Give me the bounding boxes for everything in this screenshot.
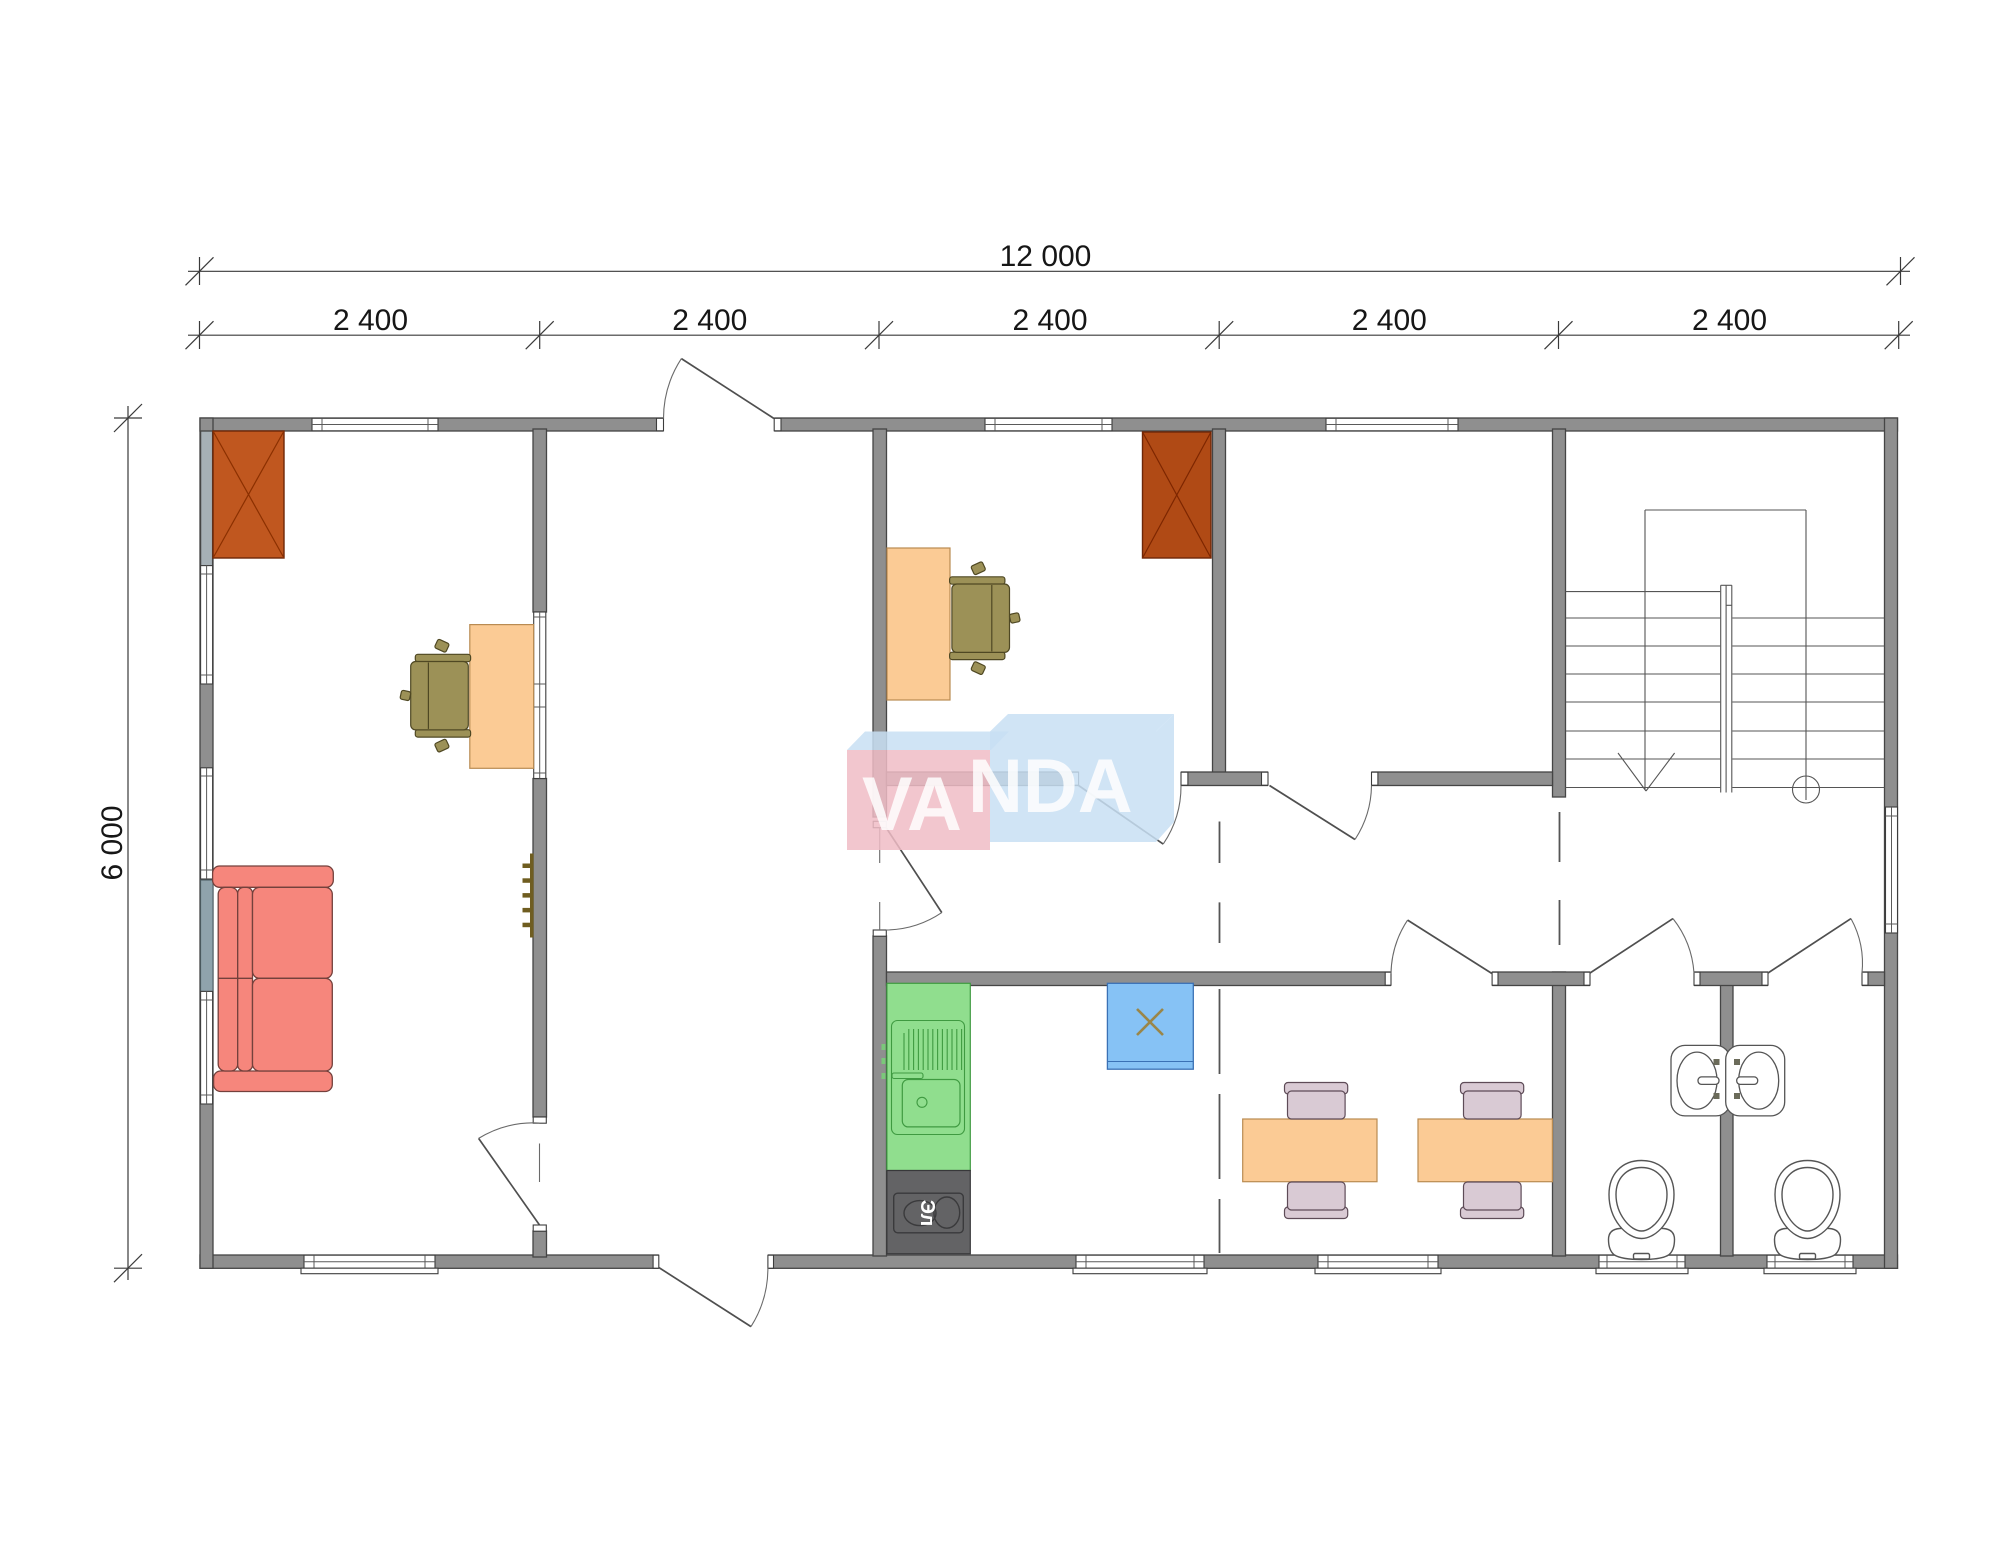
svg-text:Эл: Эл [916,1200,938,1226]
svg-text:2 400: 2 400 [333,304,408,337]
svg-text:VA: VA [862,762,962,847]
svg-text:2 400: 2 400 [1692,304,1767,337]
svg-text:2 400: 2 400 [672,304,747,337]
svg-text:6 000: 6 000 [96,805,129,880]
svg-text:2 400: 2 400 [1352,304,1427,337]
svg-text:2 400: 2 400 [1012,304,1087,337]
svg-text:NDA: NDA [968,744,1133,829]
svg-text:12 000: 12 000 [1000,240,1092,273]
